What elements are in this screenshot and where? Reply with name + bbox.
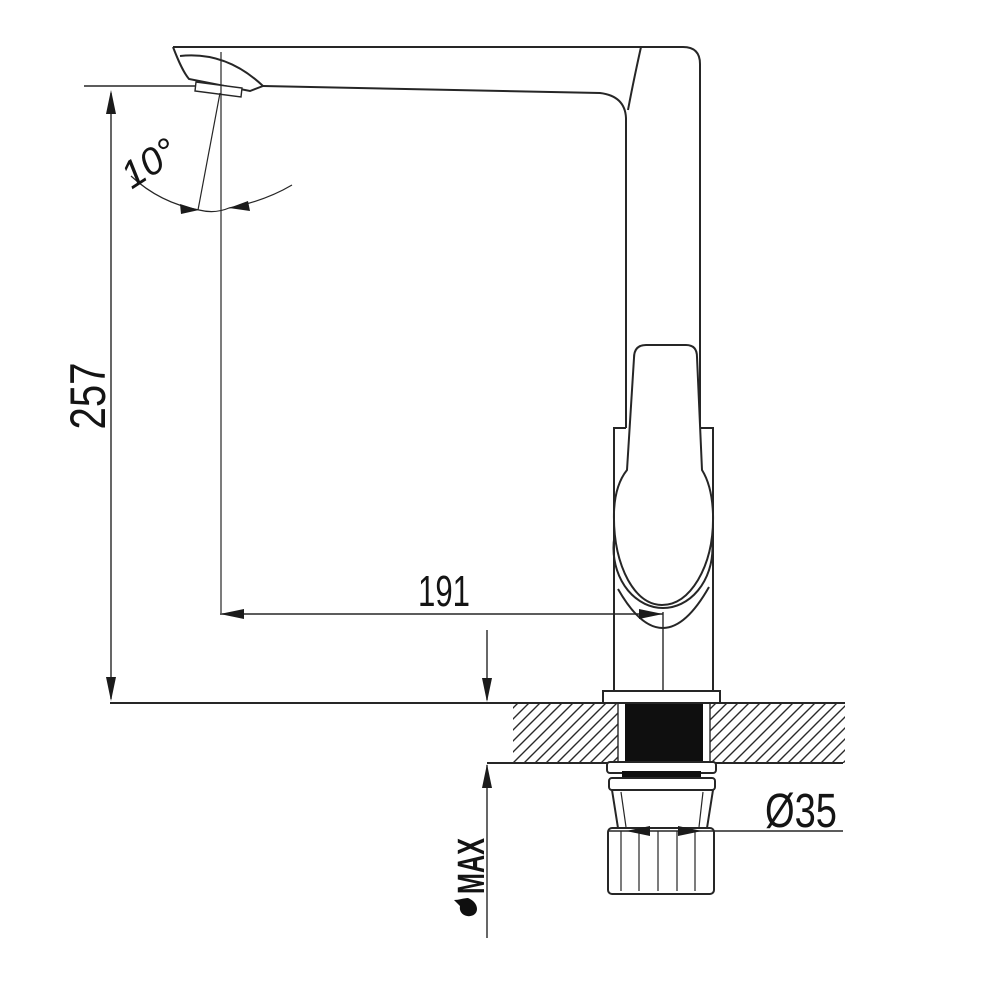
- mounting-assembly: [607, 703, 716, 894]
- drawing-canvas: 10° 257 191 MAX Ø35: [0, 0, 1000, 1000]
- height-arrow-down: [106, 677, 116, 701]
- max-thickness-dimension: MAX: [451, 630, 493, 938]
- countertop-hatch-right: [710, 703, 845, 763]
- spout-arm-inner-curve: [628, 47, 641, 110]
- countertop-hatch-left: [513, 703, 618, 763]
- reach-dimension-label: 191: [418, 567, 470, 616]
- diameter-dimension-label: Ø35: [765, 785, 837, 838]
- reach-arrow-right: [639, 609, 663, 619]
- height-arrow-up: [106, 90, 116, 114]
- handle-assembly: [614, 345, 714, 691]
- water-drop-icon: [454, 898, 477, 916]
- swivel-angle-dimension: 10°: [114, 52, 292, 613]
- washer-ring-lower: [609, 778, 715, 790]
- angle-dimension-label: 10°: [114, 131, 186, 198]
- mounting-shank-section: [625, 703, 703, 763]
- countertop-section: [110, 703, 845, 763]
- height-dimension-label: 257: [60, 363, 116, 430]
- handle-lever: [614, 345, 713, 605]
- aerator: [195, 82, 242, 97]
- collar-taper: [612, 790, 713, 828]
- max-thickness-label: MAX: [451, 838, 493, 894]
- shank-thread-strip: [622, 771, 701, 778]
- reach-dimension: 191: [220, 567, 663, 619]
- angle-arrow-right: [229, 201, 250, 211]
- knurled-nut: [608, 828, 714, 894]
- faucet-outline: [173, 47, 700, 428]
- base-flange: [603, 691, 720, 703]
- faucet-technical-drawing: 10° 257 191 MAX Ø35: [0, 0, 1000, 1000]
- spout-arm-bottom-line: [263, 86, 626, 428]
- spout-head: [173, 47, 263, 97]
- reach-arrow-left: [220, 609, 244, 619]
- spout-tilted-line: [198, 93, 220, 210]
- max-arrow-up: [482, 764, 492, 788]
- max-arrow-down: [482, 678, 492, 702]
